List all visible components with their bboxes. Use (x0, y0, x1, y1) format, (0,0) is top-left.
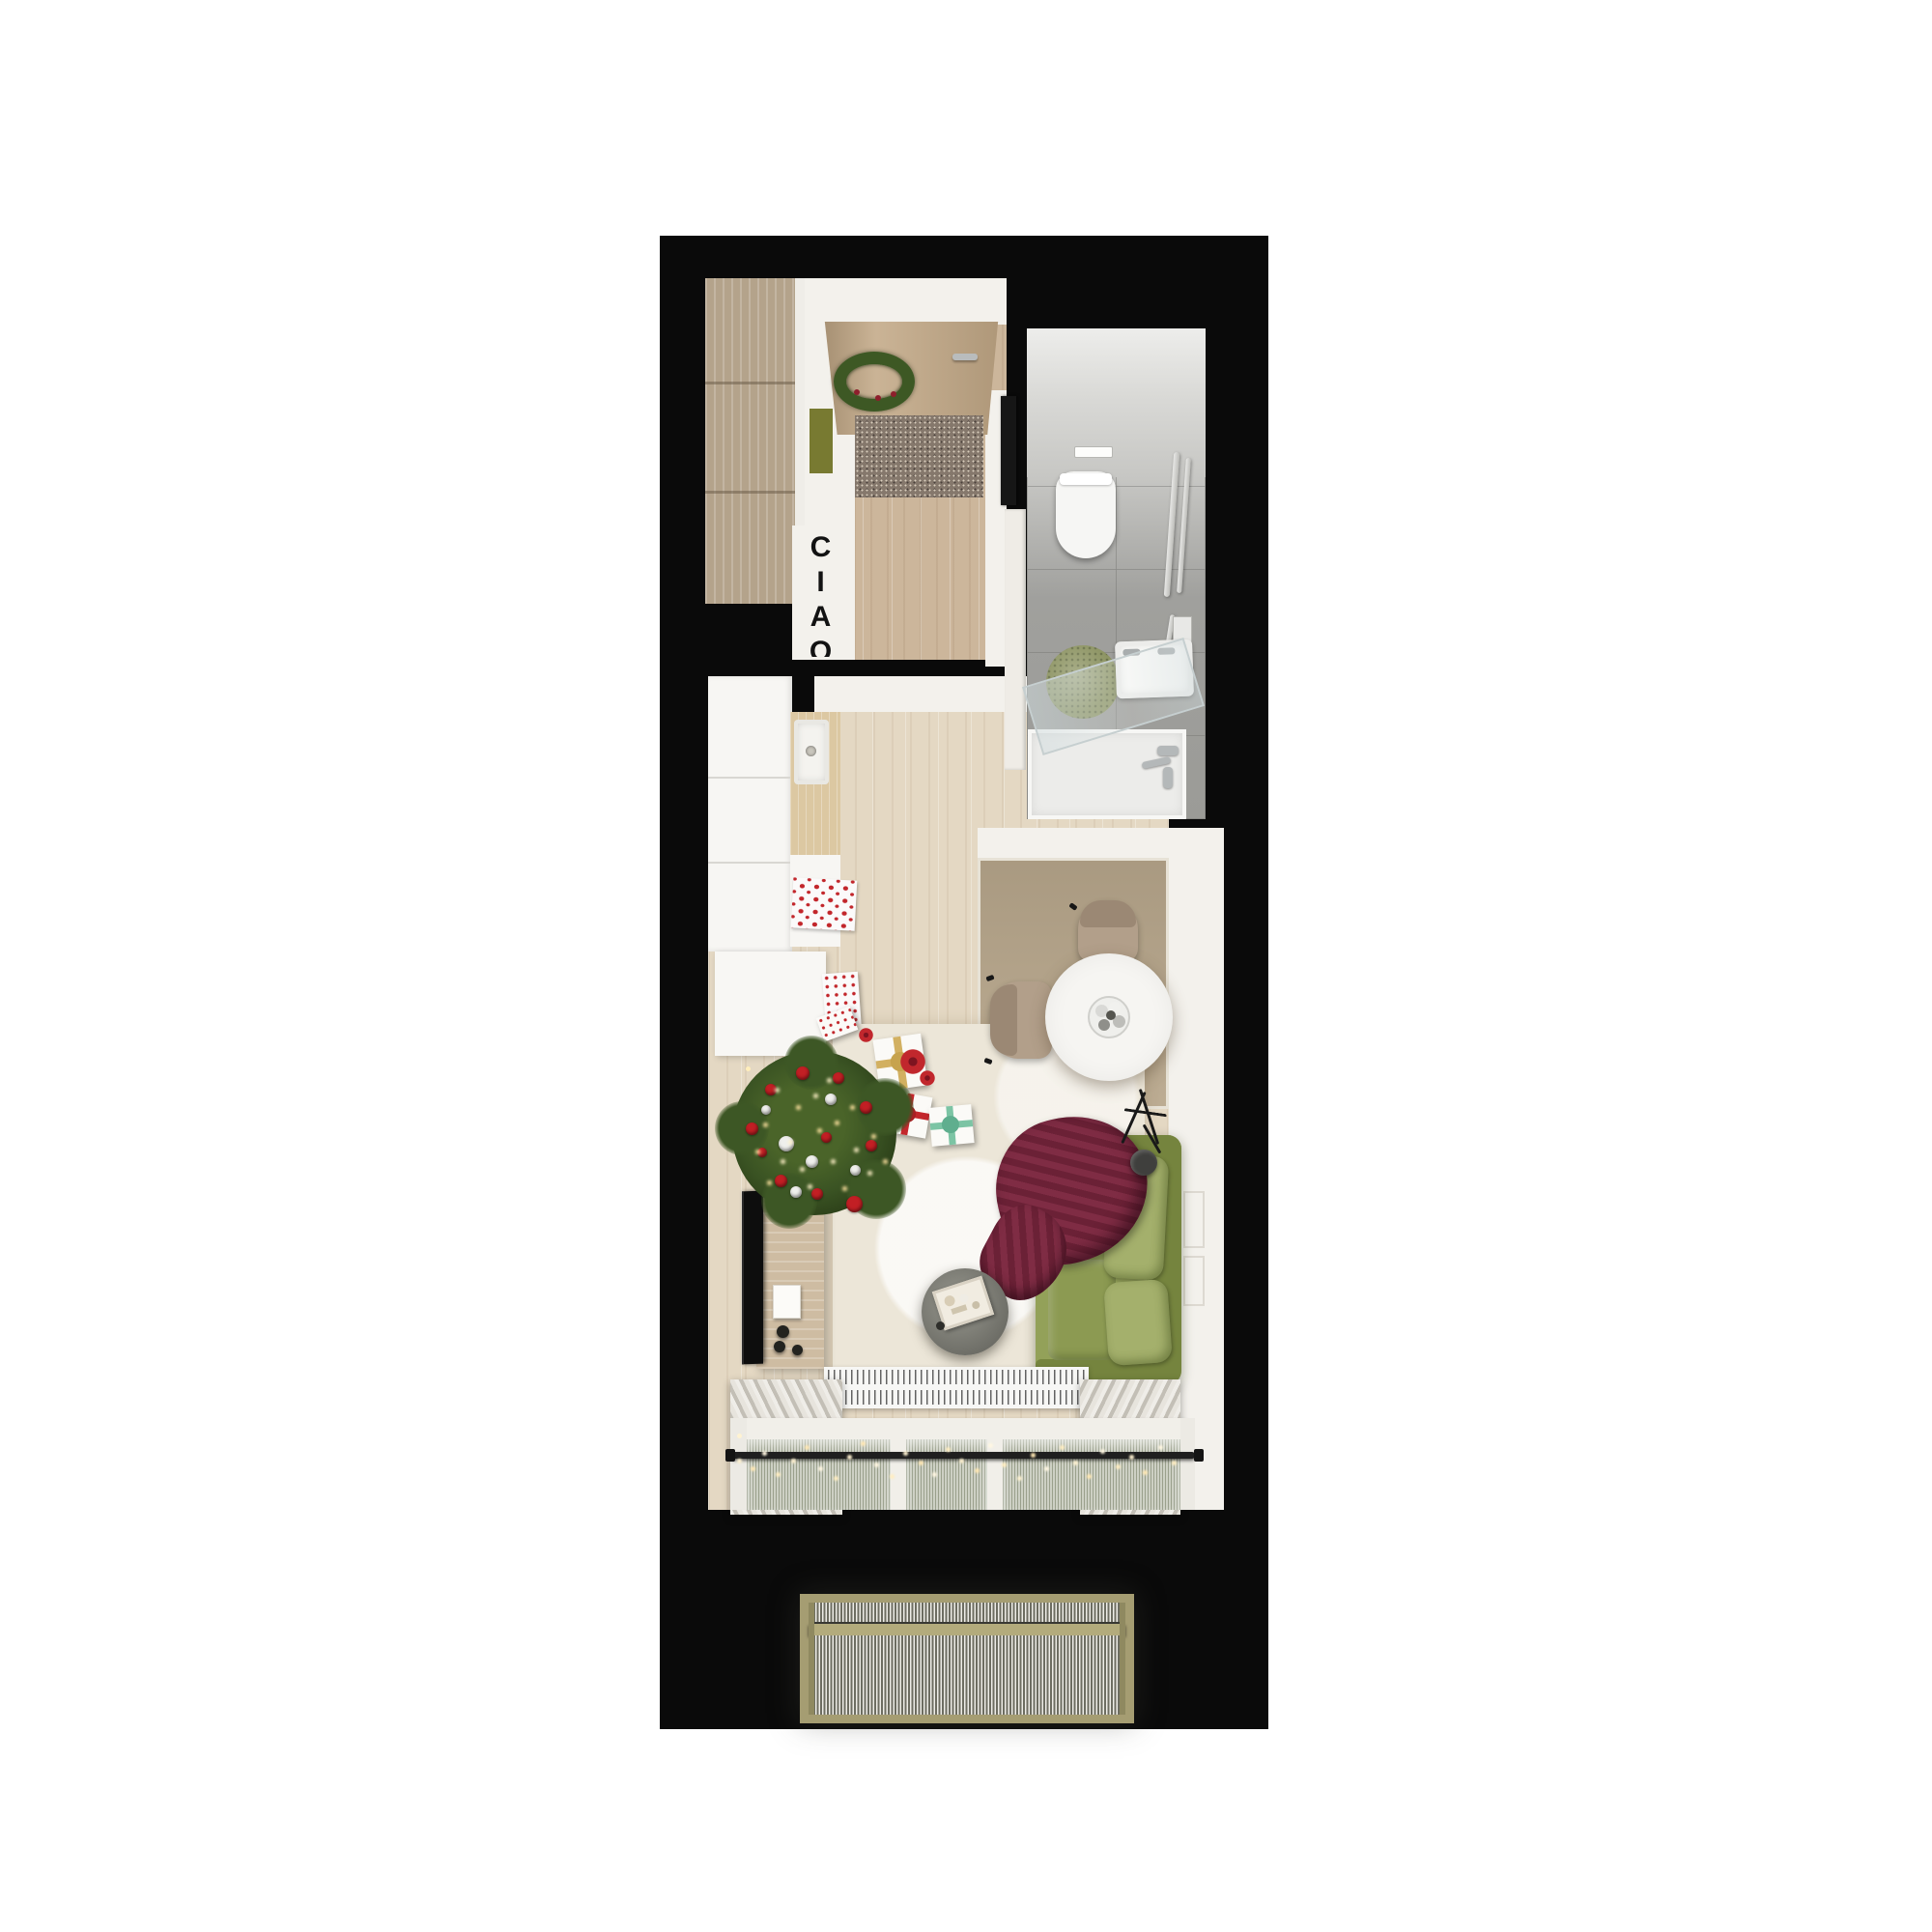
chair-backrest (990, 984, 1017, 1056)
curtain-rod-cap (1194, 1449, 1204, 1462)
doormat (855, 415, 983, 497)
bathroom-door (1005, 509, 1026, 770)
chair-backrest (1080, 900, 1136, 927)
wardrobe (705, 278, 795, 604)
bathroom-ceiling-light (1074, 446, 1113, 458)
sofa-back-cushion (1103, 1279, 1173, 1366)
tray-item (951, 1304, 967, 1315)
shower-mixer (1140, 742, 1186, 795)
door-handle (952, 354, 978, 360)
dining-chair-left (990, 981, 1052, 1059)
balcony-post (1120, 1603, 1125, 1715)
green-bench (810, 409, 833, 473)
red-ornament (765, 1084, 777, 1095)
red-ornament (757, 1148, 767, 1157)
radiator (824, 1367, 1089, 1408)
poinsettia-flower (919, 1070, 936, 1086)
ciao-lettering: CIAO (796, 531, 835, 657)
window-mullion (987, 1439, 1003, 1510)
curtain-rod (730, 1452, 1195, 1459)
tray-item (958, 1293, 969, 1303)
tree-branch (761, 1173, 817, 1229)
red-ornament (866, 1140, 877, 1151)
right-wall-window-frame (1183, 1256, 1205, 1306)
console-decor-box (773, 1285, 801, 1319)
mixer-head (1157, 746, 1179, 755)
tree-string-lights (746, 1066, 751, 1071)
radiator-slats (828, 1370, 1085, 1384)
white-ornament (850, 1165, 861, 1176)
wreath-berry (891, 391, 896, 397)
mixer-body (1163, 767, 1173, 788)
string-light-garland (737, 1434, 742, 1438)
table-candle (936, 1321, 945, 1330)
balcony-post (809, 1603, 814, 1715)
red-ornament (833, 1072, 844, 1084)
balcony-railing-bar (809, 1624, 1125, 1635)
window-glass (906, 1439, 987, 1510)
cabinet-seam (708, 777, 792, 779)
wreath-berry (854, 389, 860, 395)
red-ornament (775, 1175, 787, 1187)
red-ornament (860, 1101, 872, 1114)
white-ornament (806, 1155, 818, 1168)
snowflake-towel (791, 877, 858, 930)
white-ornament (790, 1186, 802, 1198)
tv (742, 1191, 763, 1365)
dark-bauble (1098, 1019, 1110, 1031)
kitchen-cabinet-run (708, 676, 792, 952)
white-ornament (825, 1094, 837, 1105)
radiator-slats (828, 1390, 1085, 1405)
wardrobe-seam (705, 491, 795, 494)
gift-box-teal (928, 1104, 974, 1147)
candleholder (774, 1341, 785, 1352)
balcony-grate-top (809, 1603, 1125, 1622)
window-frame-right (1180, 1418, 1195, 1510)
dark-bauble (1106, 1010, 1116, 1020)
christmas-tree (732, 1051, 896, 1215)
red-ornament (796, 1066, 810, 1080)
tray-item (971, 1300, 980, 1310)
floorplan-render: CIAO (660, 236, 1268, 1729)
floor-lamp-head (1130, 1150, 1157, 1176)
balcony (800, 1594, 1134, 1723)
poinsettia-flower (858, 1028, 874, 1042)
tree-branch (784, 1036, 838, 1090)
red-ornament (811, 1188, 823, 1200)
right-wall-window-frame (1183, 1191, 1205, 1248)
gift-bow (941, 1115, 960, 1134)
window-mullion (891, 1439, 906, 1510)
window-glass (1003, 1439, 1180, 1510)
white-ornament (761, 1105, 771, 1115)
balcony-grate-floor (809, 1635, 1125, 1715)
hall-mirror (1001, 396, 1016, 505)
ornament-bowl (1088, 996, 1130, 1038)
lamp-crossbar (1119, 1108, 1167, 1155)
christmas-wreath (834, 352, 915, 412)
cabinet-seam (708, 862, 792, 864)
window-sill (747, 1418, 1186, 1439)
red-ornament (746, 1122, 758, 1135)
red-ornament (821, 1132, 832, 1143)
toilet-lid (1060, 473, 1112, 485)
red-ornament (846, 1196, 863, 1212)
white-ornament (779, 1136, 794, 1151)
candleholder (777, 1325, 789, 1338)
wardrobe-seam (705, 382, 795, 384)
tray-item (943, 1294, 956, 1308)
window-glass (747, 1439, 891, 1510)
curtain-rod-cap (725, 1449, 735, 1462)
wreath-berry (875, 395, 881, 401)
dining-niche-top-wall (978, 828, 1169, 858)
candleholder (792, 1345, 803, 1355)
sink-drain (806, 746, 816, 756)
window-frame-left (730, 1418, 747, 1510)
